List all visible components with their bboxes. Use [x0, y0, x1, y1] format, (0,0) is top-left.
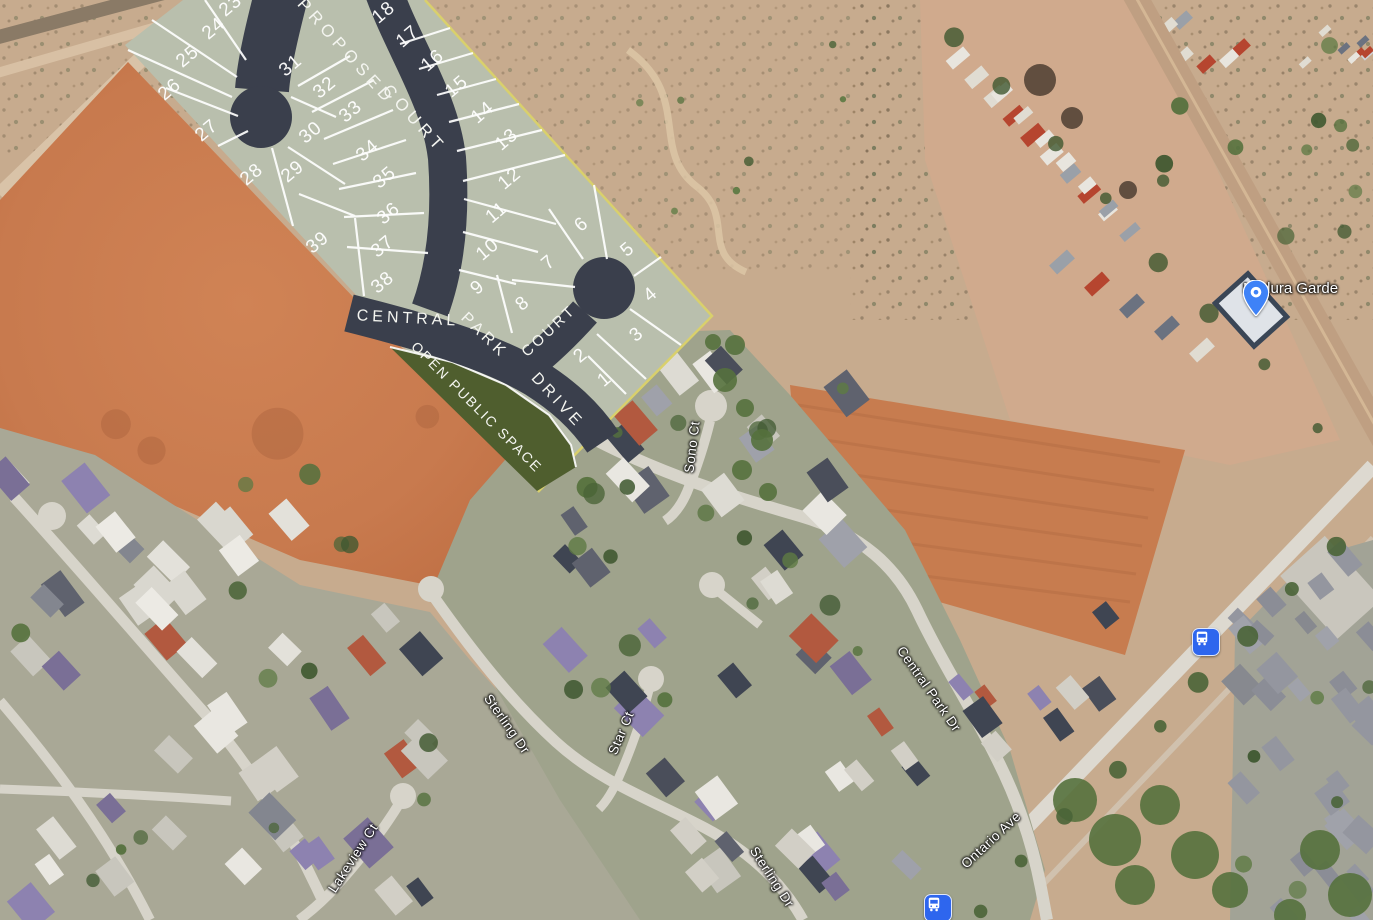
bus-glyph — [925, 895, 943, 913]
culdesac-bulb-east — [573, 257, 635, 319]
place-pin-icon[interactable] — [1243, 280, 1269, 316]
culdesac-bulb-west — [230, 86, 292, 148]
aerial-map: 1234567891011121314151617182324252627282… — [0, 0, 1373, 920]
culdesac-road-west — [262, 0, 284, 90]
bus-stop-icon[interactable] — [924, 894, 952, 920]
bus-stop-icon[interactable] — [1192, 628, 1220, 656]
poi-marker[interactable]: Mildura Garde — [1243, 280, 1338, 297]
bus-glyph — [1193, 629, 1211, 647]
satellite-basemap — [0, 0, 1373, 920]
